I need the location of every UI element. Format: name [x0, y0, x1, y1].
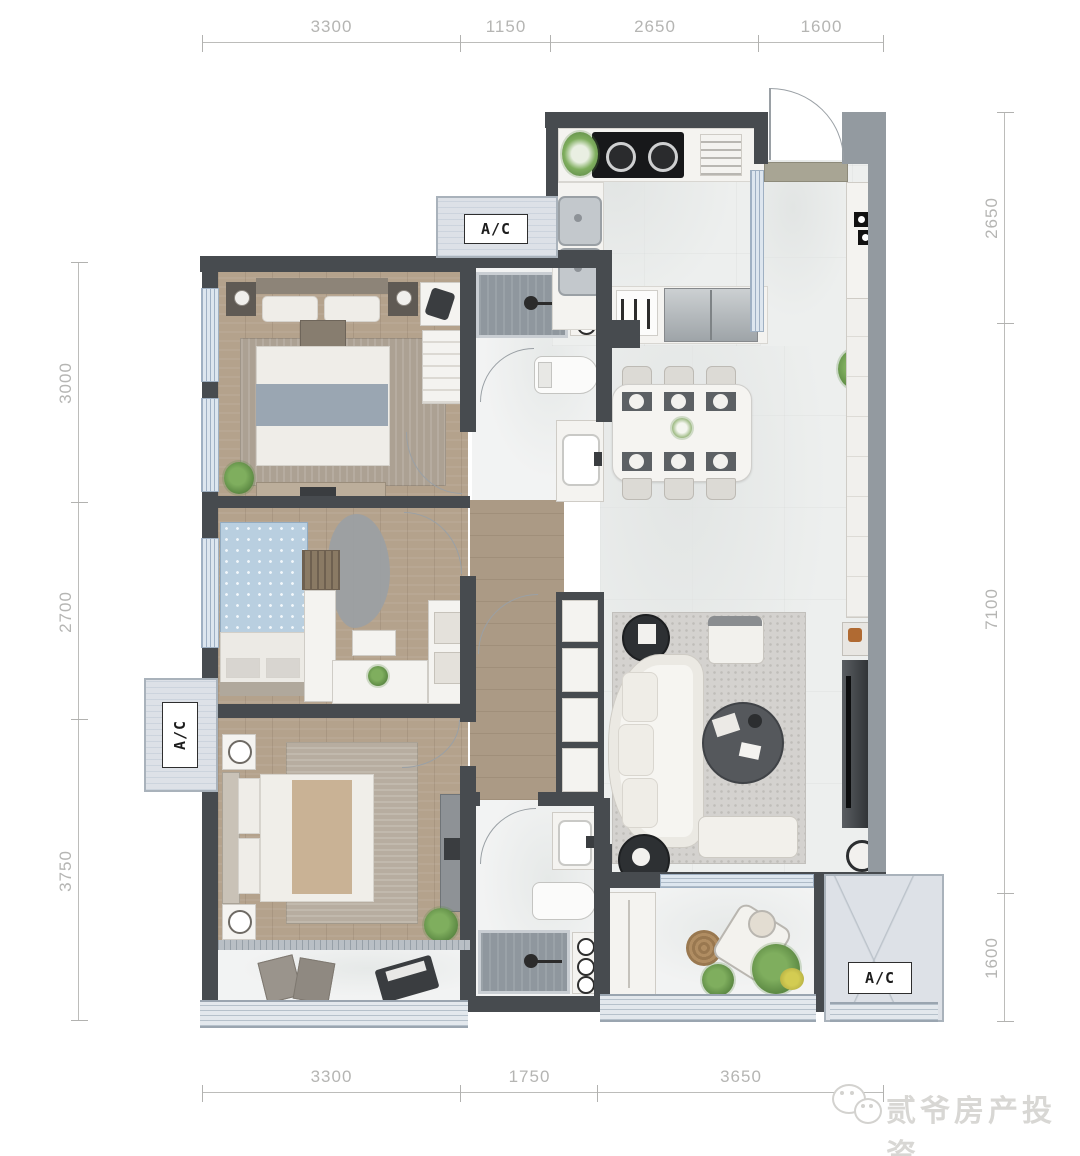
- ac-label-top-text: A/C: [481, 220, 511, 238]
- dim-tick: [597, 1085, 598, 1102]
- wall-bathroom2-right: [594, 798, 610, 1004]
- dim-left-1: 3000: [78, 262, 79, 503]
- dim-tick: [997, 1021, 1014, 1022]
- wall-bed2-master-divider: [218, 704, 470, 718]
- living-ottoman: [698, 816, 798, 858]
- dim-right-1-label: 2650: [982, 197, 1002, 239]
- dim-top-4: 1600: [759, 42, 884, 43]
- ac-label-bottom-right: A/C: [848, 962, 912, 994]
- dim-tick: [71, 719, 88, 720]
- wall-bathroom2-bottom: [460, 996, 610, 1012]
- dim-tick: [997, 323, 1014, 324]
- dining-plate-5: [671, 454, 686, 469]
- bedroom1-pillow-left: [262, 296, 318, 322]
- bedroom1-plant: [224, 462, 254, 494]
- ac-label-left-text: A/C: [171, 720, 189, 750]
- bedroom2-ladder: [302, 550, 340, 590]
- kitchen-flowers: [562, 132, 598, 176]
- dim-bottom-2-label: 1750: [509, 1067, 551, 1087]
- dim-bottom-3-label: 3650: [720, 1067, 762, 1087]
- floor-plan-image: A/C A/C A/C 3300 1150 2650 1600 3300 175…: [0, 0, 1080, 1156]
- ac-label-left: A/C: [162, 702, 198, 768]
- balcony-left-pillow-b: [293, 957, 336, 1005]
- entry-threshold: [764, 162, 848, 182]
- balcony-plant-yellow: [780, 968, 804, 990]
- dim-tick: [883, 35, 884, 52]
- wall-entry-door-post: [754, 112, 768, 164]
- shelf-niche-4: [562, 748, 598, 792]
- balcony-washer: [608, 892, 656, 996]
- master-bed-blanket: [292, 780, 352, 894]
- dim-tick: [460, 35, 461, 52]
- living-right-cabinet-strip: [846, 298, 870, 618]
- dining-plate-6: [713, 454, 728, 469]
- dining-plate-1: [629, 394, 644, 409]
- living-sofa-cushion-2: [618, 724, 654, 776]
- bathroom2-knob-3: [577, 976, 595, 994]
- bedroom1-lamp-right: [396, 290, 412, 306]
- ac-platform-bottom-right: [824, 874, 944, 1022]
- living-side-table-top-item: [638, 624, 656, 644]
- dim-right-3: 1600: [1004, 894, 1005, 1022]
- dim-tick: [460, 1085, 461, 1102]
- master-pillow-a: [238, 778, 260, 834]
- bedroom2-bed-quilt: [220, 522, 308, 636]
- wechat-icon-eye: [850, 1091, 854, 1095]
- bedroom1-dresser-decor: [300, 487, 336, 496]
- dim-right-3-label: 1600: [982, 937, 1002, 979]
- dim-tick: [202, 35, 203, 52]
- entry-door-leaf: [769, 88, 771, 160]
- kitchen-fridge-split: [710, 290, 712, 340]
- bedroom2-wardrobe-shelf: [434, 612, 462, 644]
- wall-bathroom2-top-left: [470, 792, 480, 806]
- wall-bed1-bed2-divider: [218, 496, 470, 508]
- dim-tick: [71, 1020, 88, 1021]
- dim-top-1: 3300: [202, 42, 461, 43]
- kitchen-burner-left: [606, 142, 636, 172]
- wechat-icon-eye: [840, 1091, 844, 1095]
- wall-right-outer: [868, 160, 886, 886]
- bedroom2-pillow-a: [226, 658, 260, 678]
- ac-label-top: A/C: [464, 214, 528, 244]
- wechat-icon-eye: [861, 1104, 865, 1108]
- dining-centerpiece: [672, 418, 692, 438]
- master-plant: [424, 908, 458, 942]
- living-tv: [846, 676, 851, 808]
- kitchen-appliance: [700, 134, 742, 176]
- bedroom1-wardrobe: [422, 330, 464, 404]
- bathroom2-shower-arm: [536, 960, 562, 963]
- dim-left-3-label: 3750: [56, 850, 76, 892]
- dining-chair-bottom-2: [664, 478, 694, 500]
- balcony-right-window-band: [600, 994, 816, 1022]
- balcony-washer-panel: [628, 900, 630, 988]
- bedroom1-window-b: [201, 398, 219, 492]
- dim-top-1-label: 3300: [311, 17, 353, 37]
- dim-tick: [758, 35, 759, 52]
- watermark: 贰爷房产投资: [828, 1080, 1080, 1130]
- bedroom2-window: [201, 538, 219, 648]
- living-coffee-table-bowl: [748, 714, 762, 728]
- bedroom2-headboard: [220, 682, 306, 696]
- dim-right-1: 2650: [1004, 112, 1005, 324]
- vanity-faucet: [594, 452, 602, 466]
- wall-living-bottom-left-pillar: [594, 844, 612, 888]
- living-balcony-window: [660, 874, 814, 888]
- living-side-table-bottom-item: [632, 848, 650, 866]
- dim-top-3-label: 2650: [634, 17, 676, 37]
- shelf-niche-1: [562, 600, 598, 642]
- wechat-icon-eye: [869, 1104, 873, 1108]
- dim-bottom-1: 3300: [202, 1092, 461, 1093]
- dining-chair-bottom-3: [706, 478, 736, 500]
- ac-label-bottom-right-text: A/C: [865, 969, 895, 987]
- living-sofa-cushion-1: [622, 672, 658, 722]
- kitchen-glass-partition: [750, 170, 764, 332]
- bedroom1-bed-headboard: [256, 278, 388, 294]
- dim-bottom-1-label: 3300: [311, 1067, 353, 1087]
- living-console-item: [848, 628, 862, 642]
- master-balcony-window: [218, 940, 470, 950]
- ac-bottom-right-hatch: [830, 1002, 938, 1022]
- dim-top-3: 2650: [551, 42, 759, 43]
- bedroom1-pillow-right: [324, 296, 380, 322]
- kitchen-sink-a-drain: [574, 214, 582, 222]
- bedroom2-plant: [368, 666, 388, 686]
- dim-bottom-2: 1750: [461, 1092, 598, 1093]
- bedroom1-bed-blanket: [256, 384, 388, 426]
- dim-left-2: 2700: [78, 503, 79, 720]
- bedroom2-pillow-b: [266, 658, 300, 678]
- living-armchair-back: [708, 616, 762, 626]
- bedroom1-lamp-left: [234, 290, 250, 306]
- dining-plate-3: [713, 394, 728, 409]
- dim-right-2: 7100: [1004, 324, 1005, 894]
- wall-kitchen-bath-chunk: [598, 320, 640, 348]
- dim-left-3: 3750: [78, 720, 79, 1021]
- living-sofa-cushion-3: [622, 778, 658, 828]
- dim-tick: [71, 262, 88, 263]
- dim-left-1-label: 3000: [56, 362, 76, 404]
- shelf-niche-3: [562, 698, 598, 742]
- master-pillow-b: [238, 838, 260, 894]
- balcony-plant-small: [702, 964, 734, 996]
- balcony-lounge-headrest: [748, 910, 776, 938]
- master-lamp-bottom: [228, 910, 252, 934]
- wechat-icon-small-bubble: [854, 1098, 882, 1124]
- dim-tick: [997, 893, 1014, 894]
- bedroom2-wardrobe-shelf2: [434, 652, 462, 684]
- bathroom2-knob-2: [577, 958, 595, 976]
- dim-top-4-label: 1600: [801, 17, 843, 37]
- entry-switch-1-dot: [858, 216, 865, 223]
- dining-plate-2: [671, 394, 686, 409]
- bedroom1-window-a: [201, 288, 219, 382]
- kitchen-burner-right: [648, 142, 678, 172]
- dim-tick: [71, 502, 88, 503]
- watermark-text: 贰爷房产投资: [886, 1086, 1080, 1156]
- wall-bedblock-right-b: [460, 576, 476, 722]
- wall-bedblock-right-a: [460, 256, 476, 432]
- dim-right-2-label: 7100: [982, 588, 1002, 630]
- dining-plate-4: [629, 454, 644, 469]
- dim-tick: [550, 35, 551, 52]
- bathroom1-toilet-tank: [538, 362, 552, 388]
- bathroom2-toilet: [532, 882, 596, 920]
- bathroom2-faucet: [586, 836, 594, 848]
- dim-top-2-label: 1150: [486, 17, 527, 37]
- balcony-left-window-band: [200, 1000, 468, 1028]
- dining-chair-bottom-1: [622, 478, 652, 500]
- shelf-niche-2: [562, 648, 598, 692]
- dim-left-2-label: 2700: [56, 591, 76, 633]
- bathroom2-knob-1: [577, 938, 595, 956]
- master-desk-item: [444, 838, 460, 860]
- master-lamp-top: [228, 740, 252, 764]
- wall-kitchen-top: [545, 112, 766, 128]
- dim-tick: [997, 112, 1014, 113]
- dim-tick: [202, 1085, 203, 1102]
- wall-entry-top-right: [842, 112, 886, 164]
- entry-door-arc: [770, 88, 844, 160]
- dim-top-2: 1150: [461, 42, 551, 43]
- bedroom2-bench: [352, 630, 396, 656]
- wall-bedroom-top: [200, 256, 476, 272]
